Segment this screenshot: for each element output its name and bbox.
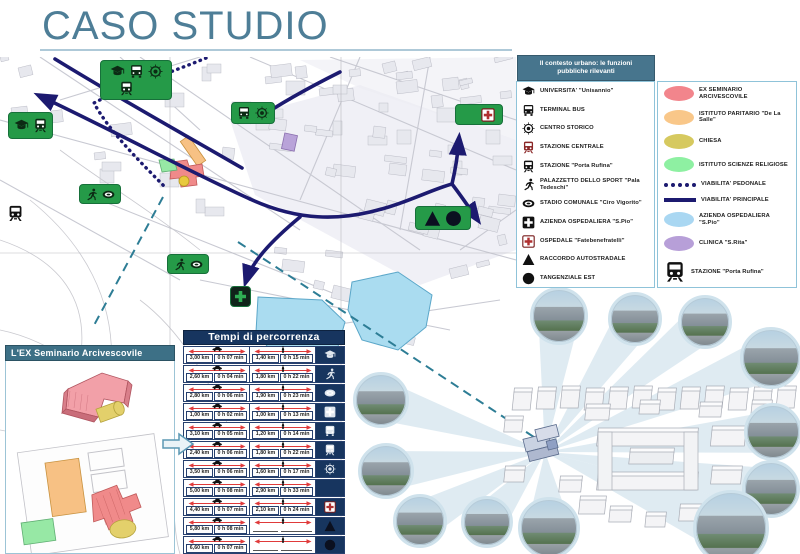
destination-icon-cell xyxy=(316,404,344,420)
train-black-icon xyxy=(119,81,134,96)
runner-icon xyxy=(522,178,535,191)
panel-link-arrow xyxy=(161,432,195,456)
pedestrian-mode-icon xyxy=(281,346,285,353)
time-value: 0 h 07 min xyxy=(214,506,247,515)
cross-black-icon xyxy=(522,216,535,229)
legend-functions: UNIVERSITA' "Unisannio"TERMINAL BUSCENTR… xyxy=(516,81,655,288)
grad-cap-icon xyxy=(324,349,336,361)
distance-value: 1,80 km xyxy=(252,449,279,458)
legend-area-item: ISTITUTO SCIENZE RELIGIOSE xyxy=(664,157,792,172)
train-black-icon xyxy=(522,160,535,173)
legend-function-label: TANGENZIALE EST xyxy=(540,275,595,282)
legend-function-label: PALAZZETTO DELLO SPORT "Pala Tedeschi" xyxy=(540,178,650,191)
legend-function-item: TERMINAL BUS xyxy=(522,104,650,117)
distance-value: 1,00 km xyxy=(252,411,279,420)
circle-icon xyxy=(324,539,336,551)
walk-distance-cell: 1,80 km0 h 22 min xyxy=(250,366,316,382)
train-red-icon xyxy=(324,482,336,494)
train-black-icon xyxy=(33,118,48,133)
legend-header: Il contesto urbano: le funzioni pubblich… xyxy=(517,55,655,81)
car-distance-cell: 4,40 km0 h 07 min xyxy=(184,499,250,515)
pedestrian-mode-icon xyxy=(281,365,285,372)
distance-value: 1,40 km xyxy=(252,354,279,363)
distance-value: 3,50 km xyxy=(186,468,213,477)
legend-function-label: RACCORDO AUTOSTRADALE xyxy=(540,256,626,263)
legend-area-label: CHIESA xyxy=(699,138,722,145)
car-mode-icon xyxy=(211,536,222,542)
legend-area-item: AZIENDA OSPEDALIERA "S.Pio" xyxy=(664,212,792,227)
cross-red-icon xyxy=(522,235,535,248)
car-distance-cell: 2,80 km0 h 06 min xyxy=(184,385,250,401)
grad-cap-icon xyxy=(14,118,29,133)
stadium-icon xyxy=(522,197,535,210)
walk-distance-cell: 1,60 km0 h 17 min xyxy=(250,461,316,477)
destination-icon-cell xyxy=(316,385,344,401)
train-red-icon xyxy=(522,141,535,154)
destination-icon-cell xyxy=(316,461,344,477)
time-value: 0 h 13 min xyxy=(280,411,313,420)
area-swatch xyxy=(664,212,694,227)
legend-area-label: EX SEMINARIO ARCIVESCOVILE xyxy=(699,87,792,100)
bullseye-icon xyxy=(324,463,336,475)
train-black-icon xyxy=(324,444,336,456)
building-photo xyxy=(393,494,447,548)
distance-value: 5,80 km xyxy=(186,525,213,534)
destination-icon-cell xyxy=(316,518,344,534)
walk-distance-cell: 1,90 km0 h 23 min xyxy=(250,385,316,401)
time-value: 0 h 07 min xyxy=(214,354,247,363)
page-title: CASO STUDIO xyxy=(42,4,329,49)
destination-icon-cell xyxy=(316,499,344,515)
car-mode-icon xyxy=(211,384,222,390)
legend-function-item: STADIO COMUNALE "Ciro Vigorito" xyxy=(522,197,650,210)
circle-icon xyxy=(445,210,462,227)
badge-sport-stadio-2 xyxy=(167,254,209,274)
legend-area-label: VIABILITA' PEDONALE xyxy=(701,181,766,188)
cross-black-icon xyxy=(324,406,336,418)
legend-function-label: AZIENDA OSPEDALIERA "S.Pio" xyxy=(540,219,633,226)
distance-value: 6,60 km xyxy=(186,544,213,553)
car-mode-icon xyxy=(211,365,222,371)
legend-function-label: CENTRO STORICO xyxy=(540,125,594,132)
stadium-icon xyxy=(324,387,336,399)
distance-value: 5,00 km xyxy=(186,487,213,496)
time-value: 0 h 08 min xyxy=(214,525,247,534)
runner-icon xyxy=(324,368,336,380)
building-photo xyxy=(608,292,662,346)
building-photo xyxy=(518,497,580,554)
pedestrian-mode-icon xyxy=(281,422,285,429)
badge-stazione-ospedale xyxy=(455,104,503,125)
car-distance-cell: 5,00 km0 h 08 min xyxy=(184,480,250,496)
legend-function-item: CENTRO STORICO xyxy=(522,122,650,135)
seminario-panel: L'EX Seminario Arcivescovile xyxy=(5,345,175,554)
travel-time-row: 6,60 km0 h 07 min xyxy=(183,536,345,554)
legend-function-item: STAZIONE "Porta Rufina" xyxy=(522,160,650,173)
area-swatch xyxy=(664,134,694,149)
car-distance-cell: 3,50 km0 h 06 min xyxy=(184,461,250,477)
time-value: 0 h 14 min xyxy=(280,430,313,439)
car-distance-cell: 1,00 km0 h 02 min xyxy=(184,404,250,420)
cross-red-icon xyxy=(481,108,495,122)
time-value: 0 h 05 min xyxy=(214,430,247,439)
seminario-drawing xyxy=(5,361,175,554)
legend-function-item: PALAZZETTO DELLO SPORT "Pala Tedeschi" xyxy=(522,178,650,191)
building-photo xyxy=(461,496,513,548)
solid-line-swatch xyxy=(664,198,696,202)
travel-times-table: Tempi di percorrenza 3,00 km0 h 07 min1,… xyxy=(183,330,345,554)
badge-terminal-centro xyxy=(231,102,275,124)
travel-time-row: 2,40 km0 h 06 min1,80 km0 h 22 min xyxy=(183,441,345,459)
time-value: 0 h 33 min xyxy=(280,487,313,496)
distance-value: 1,00 km xyxy=(186,411,213,420)
time-value: 0 h 22 min xyxy=(280,373,313,382)
legend-area-label: CLINICA "S.Rita" xyxy=(699,240,747,247)
circle-icon xyxy=(522,272,535,285)
triangle-icon xyxy=(424,210,441,227)
legend-area-item: CLINICA "S.Rita" xyxy=(664,236,792,251)
travel-time-row: 2,80 km0 h 06 min1,90 km0 h 23 min xyxy=(183,384,345,402)
legend-area-item: CHIESA xyxy=(664,134,792,149)
bus-icon xyxy=(237,106,251,120)
bullseye-icon xyxy=(148,64,163,79)
walk-distance-cell xyxy=(250,518,316,534)
bullseye-icon xyxy=(255,106,269,120)
distance-value: 2,90 km xyxy=(252,487,279,496)
building-photo xyxy=(358,443,414,499)
grad-cap-icon xyxy=(110,64,125,79)
legend-function-label: UNIVERSITA' "Unisannio" xyxy=(540,88,613,95)
time-value: 0 h 22 min xyxy=(280,449,313,458)
bus-icon xyxy=(129,64,144,79)
no-data-dash xyxy=(253,550,278,551)
area-swatch xyxy=(664,110,694,125)
pedestrian-mode-icon xyxy=(281,384,285,391)
car-mode-icon xyxy=(211,498,222,504)
plus-icon xyxy=(234,289,247,304)
legend-function-label: STAZIONE CENTRALE xyxy=(540,144,604,151)
legend-function-label: STAZIONE "Porta Rufina" xyxy=(540,163,613,170)
legend-area-item: STAZIONE "Porta Rufina" xyxy=(664,260,792,284)
destination-icon-cell xyxy=(316,480,344,496)
bus-icon xyxy=(522,104,535,117)
travel-times-title: Tempi di percorrenza xyxy=(183,330,345,345)
legend-area-item: ISTITUTO PARITARIO "De La Salle" xyxy=(664,110,792,125)
legend-area-label: VIABILITA' PRINCIPALE xyxy=(701,197,769,204)
legend-function-item: AZIENDA OSPEDALIERA "S.Pio" xyxy=(522,216,650,229)
travel-time-row: 4,40 km0 h 07 min2,10 km0 h 24 min xyxy=(183,498,345,516)
destination-icon-cell xyxy=(316,423,344,439)
destination-icon-cell xyxy=(316,537,344,553)
car-distance-cell: 5,80 km0 h 08 min xyxy=(184,518,250,534)
train-red-icon xyxy=(138,81,153,96)
porta-rufina-station-icon xyxy=(7,205,24,222)
badge-sport-stadio-1 xyxy=(79,184,121,204)
badge-cluster-centro xyxy=(100,60,172,100)
travel-time-row: 5,00 km0 h 08 min2,90 km0 h 33 min xyxy=(183,479,345,497)
travel-time-row: 5,80 km0 h 08 min xyxy=(183,517,345,535)
badge-azienda-ospedaliera xyxy=(230,286,251,307)
car-mode-icon xyxy=(211,346,222,352)
legend-function-item: RACCORDO AUTOSTRADALE xyxy=(522,253,650,266)
stadium-icon xyxy=(102,188,115,201)
train-black-icon xyxy=(664,260,686,284)
runner-icon xyxy=(85,188,98,201)
area-swatch xyxy=(664,86,694,101)
walk-distance-cell: 1,80 km0 h 22 min xyxy=(250,442,316,458)
building-photo xyxy=(678,295,732,349)
legend-function-item: UNIVERSITA' "Unisannio" xyxy=(522,85,650,98)
building-photo xyxy=(744,403,800,461)
legend-area-item: VIABILITA' PEDONALE xyxy=(664,181,792,188)
legend-area-label: ISTITUTO SCIENZE RELIGIOSE xyxy=(699,162,788,169)
bus-icon xyxy=(324,425,336,437)
destination-icon-cell xyxy=(316,366,344,382)
stadium-icon xyxy=(190,258,203,271)
time-value: 0 h 06 min xyxy=(214,468,247,477)
pedestrian-mode-icon xyxy=(281,441,285,448)
cross-red-icon xyxy=(324,501,336,513)
distance-value: 2,10 km xyxy=(252,506,279,515)
legend-function-item: OSPEDALE "Fatebenefratelli" xyxy=(522,235,650,248)
legend-function-label: TERMINAL BUS xyxy=(540,107,585,114)
distance-value: 1,90 km xyxy=(252,392,279,401)
legend-area-label: STAZIONE "Porta Rufina" xyxy=(691,269,764,276)
travel-time-row: 3,10 km0 h 05 min1,20 km0 h 14 min xyxy=(183,422,345,440)
triangle-icon xyxy=(324,520,336,532)
pedestrian-mode-icon xyxy=(281,479,285,486)
seminario-panel-title: L'EX Seminario Arcivescovile xyxy=(5,345,175,361)
distance-value: 2,60 km xyxy=(186,373,213,382)
car-mode-icon xyxy=(211,441,222,447)
distance-value: 2,80 km xyxy=(186,392,213,401)
distance-value: 4,40 km xyxy=(186,506,213,515)
time-value: 0 h 24 min xyxy=(280,506,313,515)
building-photo xyxy=(740,327,800,389)
walk-distance-cell: 1,00 km0 h 13 min xyxy=(250,404,316,420)
legend-areas: EX SEMINARIO ARCIVESCOVILEISTITUTO PARIT… xyxy=(657,81,797,288)
time-value: 0 h 15 min xyxy=(280,354,313,363)
legend-area-label: ISTITUTO PARITARIO "De La Salle" xyxy=(699,111,792,124)
pedestrian-mode-icon xyxy=(281,403,285,410)
travel-time-row: 3,00 km0 h 07 min1,40 km0 h 15 min xyxy=(183,346,345,364)
legend-function-label: STADIO COMUNALE "Ciro Vigorito" xyxy=(540,200,642,207)
no-data-dash xyxy=(253,531,278,532)
slide: CASO STUDIO Il contesto urbano: le funzi… xyxy=(0,0,800,554)
time-value: 0 h 04 min xyxy=(214,373,247,382)
triangle-icon xyxy=(522,253,535,266)
building-photo xyxy=(353,372,409,428)
walk-distance-cell: 1,40 km0 h 15 min xyxy=(250,347,316,363)
distance-value: 1,60 km xyxy=(252,468,279,477)
distance-value: 1,20 km xyxy=(252,430,279,439)
travel-time-row: 2,60 km0 h 04 min1,80 km0 h 22 min xyxy=(183,365,345,383)
area-swatch xyxy=(664,157,694,172)
legend-area-item: VIABILITA' PRINCIPALE xyxy=(664,197,792,204)
pedestrian-mode-icon xyxy=(281,498,285,505)
car-mode-icon xyxy=(211,460,222,466)
pedestrian-mode-icon xyxy=(281,517,285,524)
walk-distance-cell: 2,10 km0 h 24 min xyxy=(250,499,316,515)
train-red-icon xyxy=(463,108,477,122)
travel-time-row: 1,00 km0 h 02 min1,00 km0 h 13 min xyxy=(183,403,345,421)
time-value: 0 h 23 min xyxy=(280,392,313,401)
pedestrian-mode-icon xyxy=(281,536,285,543)
legend-function-item: TANGENZIALE EST xyxy=(522,272,650,285)
building-photo xyxy=(530,287,588,345)
time-value: 0 h 07 min xyxy=(214,544,247,553)
distance-value: 3,00 km xyxy=(186,354,213,363)
time-value: 0 h 08 min xyxy=(214,487,247,496)
time-value: 0 h 17 min xyxy=(280,468,313,477)
car-mode-icon xyxy=(211,517,222,523)
legend-function-label: OSPEDALE "Fatebenefratelli" xyxy=(540,238,625,245)
badge-universita xyxy=(8,112,53,139)
time-value: 0 h 06 min xyxy=(214,392,247,401)
car-mode-icon xyxy=(211,403,222,409)
car-distance-cell: 6,60 km0 h 07 min xyxy=(184,537,250,553)
pedestrian-mode-icon xyxy=(281,460,285,467)
destination-icon-cell xyxy=(316,347,344,363)
dotted-line-swatch xyxy=(664,183,696,187)
title-rule xyxy=(40,49,512,51)
destination-icon-cell xyxy=(316,442,344,458)
car-distance-cell: 2,60 km0 h 04 min xyxy=(184,366,250,382)
grad-cap-icon xyxy=(522,85,535,98)
car-mode-icon xyxy=(211,479,222,485)
walk-distance-cell xyxy=(250,537,316,553)
bullseye-icon xyxy=(522,122,535,135)
walk-distance-cell: 1,20 km0 h 14 min xyxy=(250,423,316,439)
walk-distance-cell: 2,90 km0 h 33 min xyxy=(250,480,316,496)
time-value: 0 h 02 min xyxy=(214,411,247,420)
area-swatch xyxy=(664,236,694,251)
distance-value: 1,80 km xyxy=(252,373,279,382)
no-data-dash xyxy=(281,550,312,551)
legend-area-item: EX SEMINARIO ARCIVESCOVILE xyxy=(664,86,792,101)
car-mode-icon xyxy=(211,422,222,428)
legend-function-item: STAZIONE CENTRALE xyxy=(522,141,650,154)
runner-icon xyxy=(173,258,186,271)
legend-area-label: AZIENDA OSPEDALIERA "S.Pio" xyxy=(699,213,792,226)
travel-time-row: 3,50 km0 h 06 min1,60 km0 h 17 min xyxy=(183,460,345,478)
no-data-dash xyxy=(281,531,312,532)
time-value: 0 h 06 min xyxy=(214,449,247,458)
badge-raccordo-tangenziale xyxy=(415,206,471,230)
car-distance-cell: 3,00 km0 h 07 min xyxy=(184,347,250,363)
